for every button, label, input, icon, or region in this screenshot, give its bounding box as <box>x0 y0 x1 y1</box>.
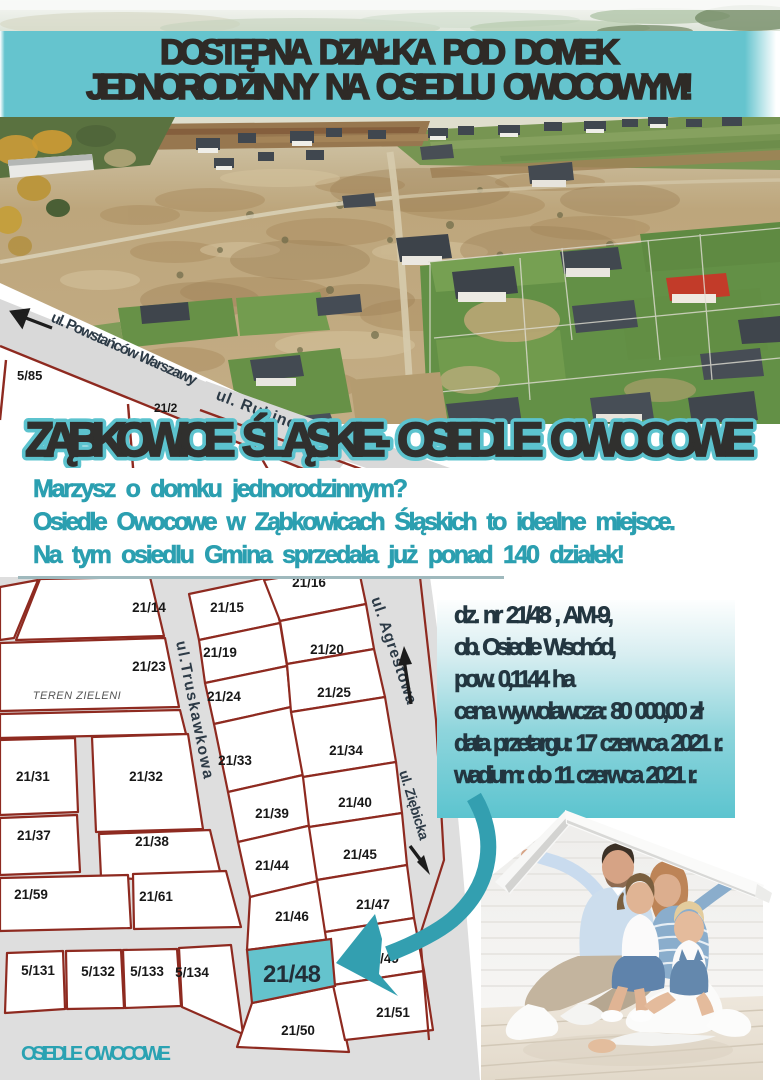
svg-text:21/51: 21/51 <box>376 1005 410 1020</box>
svg-text:5/132: 5/132 <box>81 964 115 979</box>
svg-text:21/25: 21/25 <box>317 685 351 700</box>
svg-text:21/39: 21/39 <box>255 806 289 821</box>
svg-text:5/134: 5/134 <box>175 965 209 980</box>
svg-text:21/61: 21/61 <box>139 889 173 904</box>
svg-text:OSIEDLE OWOCOWE: OSIEDLE OWOCOWE <box>21 1043 171 1065</box>
svg-text:data przetargu: 17 czerwca 202: data przetargu: 17 czerwca 2021 r. <box>454 730 724 757</box>
svg-text:21/15: 21/15 <box>210 600 244 615</box>
svg-text:21/23: 21/23 <box>132 659 166 674</box>
svg-text:21/44: 21/44 <box>255 858 289 873</box>
svg-text:21/32: 21/32 <box>129 769 163 784</box>
svg-text:21/50: 21/50 <box>281 1023 315 1038</box>
svg-text:5/85: 5/85 <box>17 368 42 383</box>
svg-text:ob. Osiedle Wschód,: ob. Osiedle Wschód, <box>454 634 617 661</box>
svg-text:21/33: 21/33 <box>218 753 252 768</box>
svg-text:21/2: 21/2 <box>154 401 178 415</box>
svg-text:21/14: 21/14 <box>132 600 166 615</box>
svg-text:Osiedle Owocowe w Ząbkowicach: Osiedle Owocowe w Ząbkowicach Śląskich t… <box>33 506 676 536</box>
svg-text:21/59: 21/59 <box>14 887 48 902</box>
svg-text:21/38: 21/38 <box>135 834 169 849</box>
svg-text:21/37: 21/37 <box>17 828 51 843</box>
svg-text:dz. nr 21/48 , AM-9,: dz. nr 21/48 , AM-9, <box>454 602 614 629</box>
svg-text:21/34: 21/34 <box>329 743 363 758</box>
svg-text:Na tym osiedlu Gmina sprzedała: Na tym osiedlu Gmina sprzedała już ponad… <box>33 541 625 569</box>
svg-text:5/131: 5/131 <box>21 963 55 978</box>
svg-text:21/20: 21/20 <box>310 642 344 657</box>
svg-text:21/31: 21/31 <box>16 769 50 784</box>
svg-text:21/40: 21/40 <box>338 795 372 810</box>
svg-text:ZĄBKOWICE ŚLĄSKIE- OSIEDLE OWO: ZĄBKOWICE ŚLĄSKIE- OSIEDLE OWOCOWE <box>25 412 755 467</box>
svg-text:5/133: 5/133 <box>130 964 164 979</box>
svg-text:pow. 0,1144 ha: pow. 0,1144 ha <box>454 666 577 693</box>
svg-text:21/47: 21/47 <box>356 897 390 912</box>
svg-text:TEREN ZIELENI: TEREN ZIELENI <box>33 690 121 702</box>
svg-text:21/45: 21/45 <box>343 847 377 862</box>
svg-text:21/19: 21/19 <box>203 645 237 660</box>
svg-text:Marzysz o domku jednorodzinnym: Marzysz o domku jednorodzinnym? <box>33 475 408 503</box>
svg-text:cena wywoławcza: 80 000,00 zł: cena wywoławcza: 80 000,00 zł <box>454 698 704 725</box>
svg-text:21/48: 21/48 <box>263 961 321 988</box>
svg-text:JEDNORODZINNY NA OSIEDLU OWOCO: JEDNORODZINNY NA OSIEDLU OWOCOWYM! <box>86 66 694 107</box>
svg-text:wadium: do 11 czerwca 2021 r.: wadium: do 11 czerwca 2021 r. <box>453 762 698 789</box>
svg-text:21/46: 21/46 <box>275 909 309 924</box>
svg-text:21/24: 21/24 <box>207 689 241 704</box>
